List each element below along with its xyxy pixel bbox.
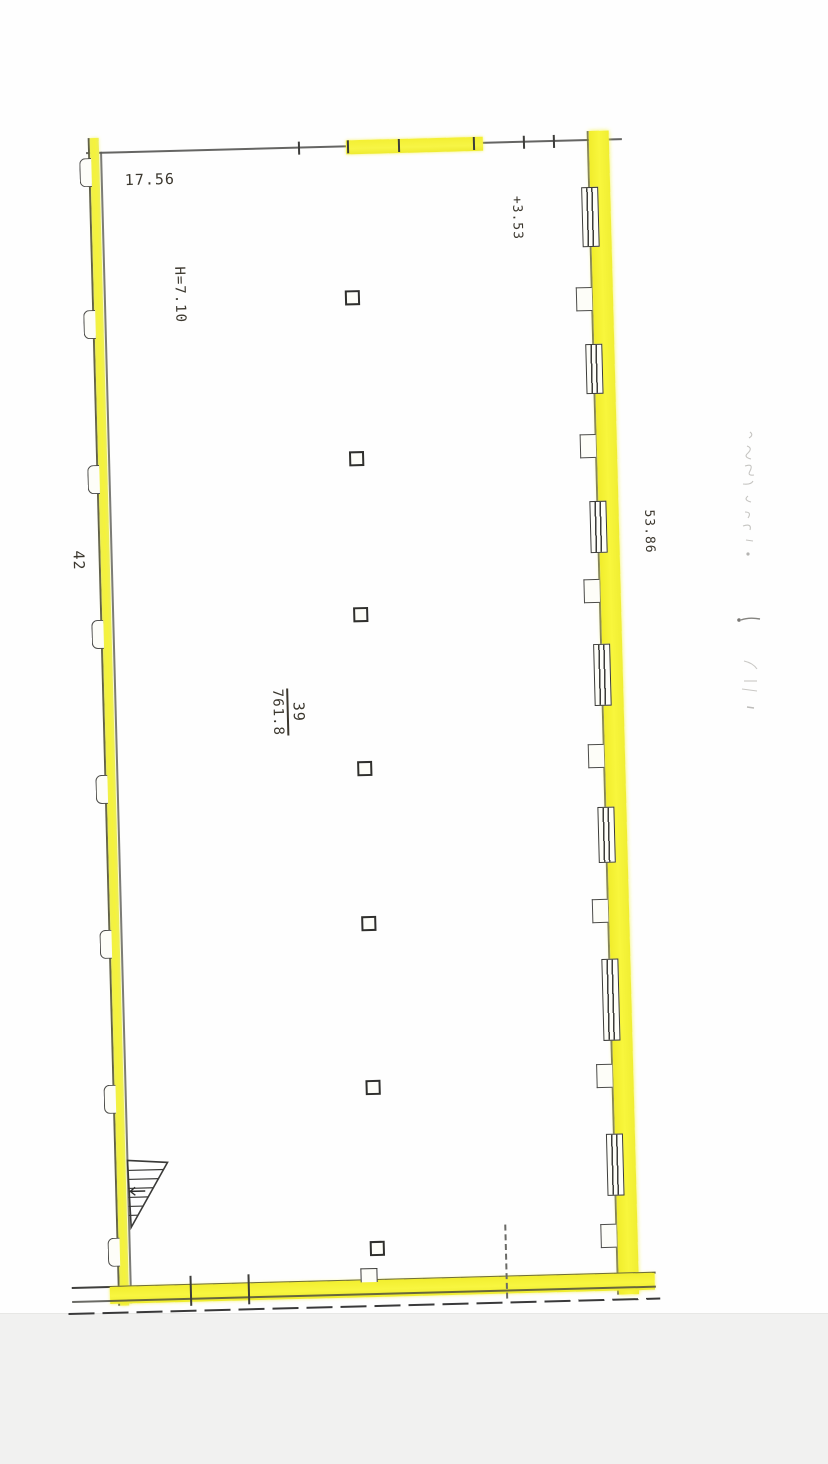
wall-tick [473,137,475,150]
column-marker [349,451,364,466]
window-symbol [597,807,615,863]
pilaster-bump [360,1268,377,1282]
wall-tick [523,136,525,149]
pilaster-bump [87,465,100,494]
dimension-label-top: 17.56 [125,170,176,189]
wall-notch [600,1224,617,1248]
stairs-symbol [125,1156,173,1231]
window-symbol [589,501,607,553]
wall-notch [596,1064,613,1088]
window-symbol [606,1133,625,1195]
wall-right [587,130,641,1294]
wall-tick [347,140,349,153]
column-marker [357,761,372,776]
wall-notch [588,744,605,768]
wall-notch [580,434,597,458]
floor-plan-drawing: 17.56 H=7.10 +3.53 53.86 42 39 761.8 [88,138,648,1301]
window-symbol [601,959,620,1041]
level-label: +3.53 [509,196,525,241]
unit-number-area-label: 39 761.8 [269,688,308,736]
unit-area: 761.8 [269,689,287,737]
wall-left-highlight [90,138,130,1306]
wall-tick [247,1274,250,1304]
dimension-label-left: 42 [69,550,88,571]
wall-notch [583,579,600,603]
wall-top-highlight [346,137,483,155]
faint-handwriting-column [733,428,765,570]
column-marker [370,1241,385,1256]
window-symbol [581,187,600,247]
wall-tick [298,142,300,155]
column-marker [361,916,376,931]
wall-tick [398,139,400,152]
window-symbol [593,644,612,706]
pilaster-bump [107,1238,120,1267]
window-symbol [585,344,603,394]
faint-handwriting-small [738,655,764,721]
wall-tick [553,135,555,148]
faint-handwriting-dash [736,612,764,628]
wall-notch [592,899,609,923]
wall-notch [576,287,593,311]
pilaster-bump [91,620,104,649]
wall-tick [189,1276,192,1306]
wall-right-highlight [589,130,639,1294]
unit-number: 39 [286,688,308,736]
column-marker [345,290,360,305]
scanner-bed-strip [0,1313,828,1464]
pilaster-bump [95,775,108,804]
pilaster-bump [99,930,112,959]
pilaster-bump [79,158,92,187]
scanned-floor-plan-page: { "scan": { "paper_color": "#fefefe", "s… [0,0,828,1464]
height-label: H=7.10 [171,266,188,323]
column-marker [353,607,368,622]
dimension-label-right: 53.86 [641,509,657,554]
pilaster-bump [103,1085,116,1114]
pilaster-bump [83,310,96,339]
column-marker [365,1080,380,1095]
